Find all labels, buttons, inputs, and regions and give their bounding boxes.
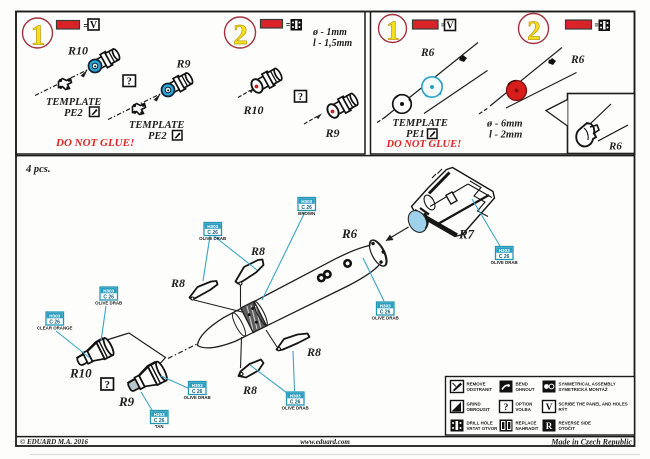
svg-text:R6: R6 — [570, 54, 585, 66]
svg-text:R9: R9 — [325, 126, 340, 140]
svg-text:DO NOT GLUE!: DO NOT GLUE! — [386, 139, 462, 150]
svg-text:1: 1 — [31, 20, 46, 52]
svg-text:RÝT: RÝT — [559, 407, 568, 412]
svg-text:R10: R10 — [67, 44, 88, 58]
svg-text:GRIND: GRIND — [467, 402, 481, 407]
svg-text:TAN: TAN — [155, 424, 164, 429]
svg-text:ø - 6mm: ø - 6mm — [486, 119, 523, 130]
svg-text:OTOČIT: OTOČIT — [559, 426, 576, 431]
svg-text:REPLACE: REPLACE — [516, 421, 537, 426]
svg-text:BROWN: BROWN — [298, 211, 315, 216]
svg-text:ø - 1mm: ø - 1mm — [312, 27, 347, 38]
svg-text:VRTAT OTVOR: VRTAT OTVOR — [467, 426, 499, 431]
svg-text:Made in Czech Republic: Made in Czech Republic — [550, 438, 632, 447]
svg-text:OPTION: OPTION — [516, 402, 533, 407]
svg-text:ODSTRANIT: ODSTRANIT — [467, 387, 493, 392]
svg-text:=: = — [595, 23, 599, 30]
svg-text:DRILL HOLE: DRILL HOLE — [467, 421, 493, 426]
svg-text:R8: R8 — [242, 383, 257, 397]
svg-text:?: ? — [504, 403, 509, 413]
svg-text:CLEAR ORANGE: CLEAR ORANGE — [37, 325, 73, 330]
svg-text:=: = — [286, 22, 290, 29]
svg-text:BEND: BEND — [516, 382, 528, 387]
svg-text:SYMETRICKÁ MONTÁŽ: SYMETRICKÁ MONTÁŽ — [559, 387, 608, 392]
svg-text:DO NOT GLUE!: DO NOT GLUE! — [55, 137, 134, 149]
svg-text:REMOVE: REMOVE — [467, 382, 486, 387]
svg-text:OLIVE DRAB: OLIVE DRAB — [199, 236, 226, 241]
svg-text:?: ? — [298, 92, 303, 103]
svg-text:© EDUARD M.A. 2016: © EDUARD M.A. 2016 — [20, 438, 89, 446]
svg-text:R6: R6 — [608, 141, 622, 153]
svg-text:2: 2 — [233, 19, 248, 51]
svg-text:R10: R10 — [243, 103, 264, 117]
svg-text:l - 1,5mm: l - 1,5mm — [313, 38, 352, 49]
svg-text:R9: R9 — [176, 57, 191, 71]
svg-text:R: R — [546, 421, 553, 431]
svg-text:REVERSE SIDE: REVERSE SIDE — [559, 421, 592, 426]
svg-text:NAHRADIT: NAHRADIT — [516, 426, 539, 431]
svg-text:OLIVE DRAB: OLIVE DRAB — [282, 405, 309, 410]
svg-text:R8: R8 — [306, 345, 321, 359]
svg-text:PE2: PE2 — [148, 131, 167, 142]
svg-text:2: 2 — [527, 16, 541, 46]
svg-text:VOLBA: VOLBA — [516, 407, 532, 412]
svg-text:?: ? — [105, 380, 110, 391]
svg-text:OBROUSIT: OBROUSIT — [467, 407, 490, 412]
svg-text:R6: R6 — [420, 47, 435, 59]
svg-text:www.eduard.com: www.eduard.com — [300, 438, 350, 446]
svg-text:R9: R9 — [118, 394, 135, 409]
svg-text:V: V — [546, 403, 553, 413]
svg-text:=: = — [84, 23, 88, 30]
svg-text:PE2: PE2 — [64, 108, 83, 119]
svg-text:R6: R6 — [341, 226, 358, 241]
svg-text:R8: R8 — [250, 244, 265, 258]
svg-text:?: ? — [127, 77, 132, 88]
svg-text:R7: R7 — [458, 227, 475, 242]
svg-text:4 pcs.: 4 pcs. — [25, 164, 51, 175]
svg-text:OLIVE DRAB: OLIVE DRAB — [95, 300, 122, 305]
svg-text:OLIVE DRAB: OLIVE DRAB — [491, 260, 518, 265]
svg-text:OHNOUT: OHNOUT — [516, 387, 535, 392]
svg-text:SYMMETRICAL ASSEMBLY: SYMMETRICAL ASSEMBLY — [559, 382, 616, 387]
svg-text:OLIVE DRAB: OLIVE DRAB — [372, 315, 399, 320]
svg-text:TEMPLATE: TEMPLATE — [129, 120, 184, 131]
svg-text:TEMPLATE: TEMPLATE — [393, 118, 448, 129]
svg-text:R8: R8 — [170, 276, 185, 290]
svg-text:1: 1 — [386, 16, 400, 46]
svg-text:SCRIBE THE PANEL AND HOLES: SCRIBE THE PANEL AND HOLES — [559, 402, 628, 407]
svg-text:l - 2mm: l - 2mm — [489, 130, 522, 141]
svg-text:R10: R10 — [69, 366, 92, 381]
svg-text:OLIVE DRAB: OLIVE DRAB — [184, 395, 211, 400]
